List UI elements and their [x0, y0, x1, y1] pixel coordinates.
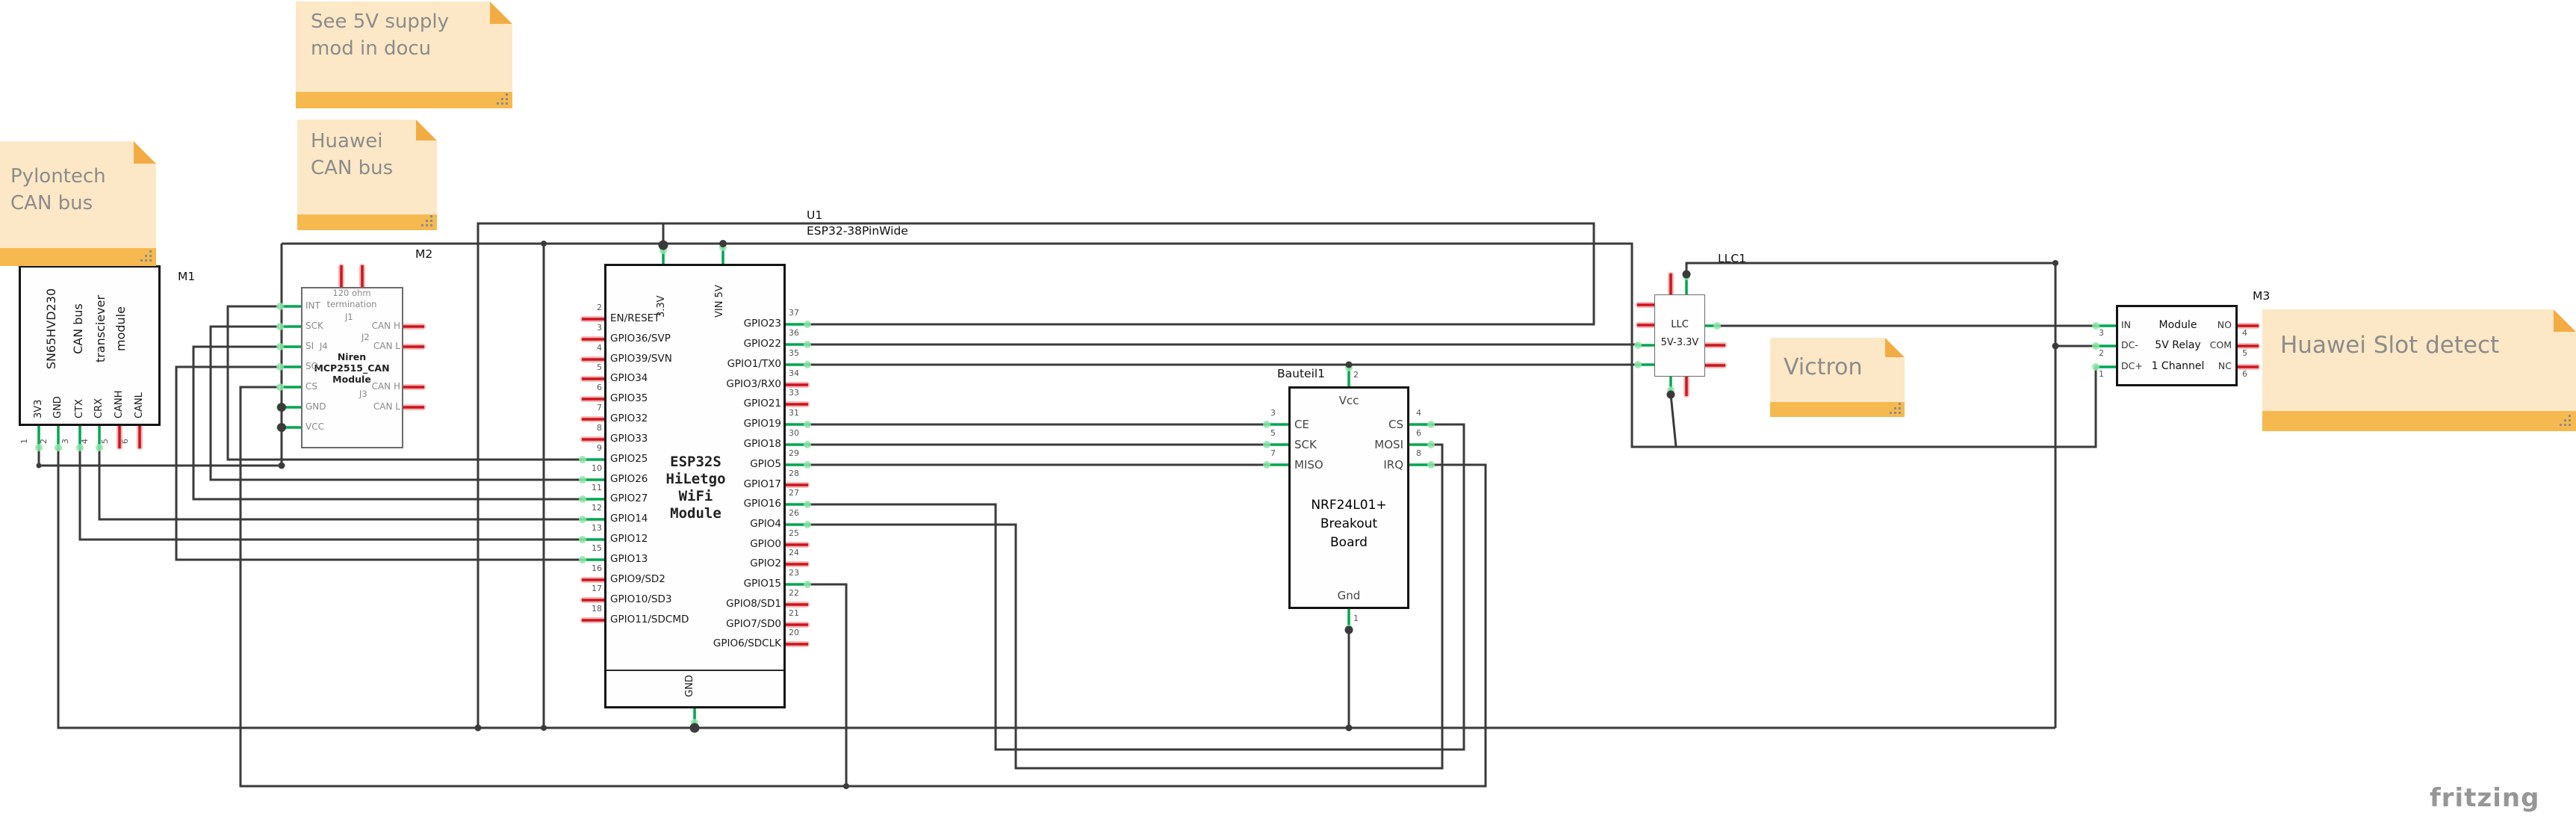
esp32-pin-num: 25: [789, 529, 799, 538]
nrf-pin-label: MOSI: [1351, 439, 1403, 451]
m2-pin-label: INT: [305, 301, 320, 311]
note-fold-icon: [490, 1, 512, 24]
nrf-pin-label: IRQ: [1351, 459, 1403, 472]
esp32-pin-num: 12: [584, 504, 602, 513]
m3-pin-label: NC: [2188, 361, 2232, 371]
esp32-pin-num: 35: [789, 349, 799, 358]
esp32-pin-num: 6: [584, 383, 602, 392]
note-resize-grip[interactable]: [1890, 403, 1902, 415]
m3-pin-num: 6: [2242, 370, 2247, 379]
m2-j2: J2: [361, 333, 370, 342]
m3-pin-num: 2: [2099, 349, 2104, 358]
m1-pin-label: CTX: [75, 359, 85, 418]
note-bottom-bar[interactable]: [2262, 411, 2576, 431]
esp32-pin-label: GPIO14: [610, 513, 648, 525]
esp32-part-name: ESP32-38PinWide: [807, 225, 908, 238]
esp32-pin-num: 24: [789, 549, 799, 557]
esp32-pin-num: 16: [584, 564, 602, 573]
m2-pin-label: SO: [305, 362, 318, 371]
esp32-pin-num: 9: [584, 444, 602, 453]
m3-pin-num: 1: [2099, 370, 2104, 379]
esp32-pin-label: GPIO19: [669, 418, 781, 430]
nrf-vcc-label: Vcc: [1322, 395, 1376, 407]
esp32-bottom-pin-gnd: GND: [685, 664, 695, 708]
esp32-pin-label: GPIO4: [669, 519, 781, 530]
esp32-pin-label: GPIO15: [669, 578, 781, 590]
esp32-pin-num: 11: [584, 483, 602, 492]
esp32-pin-num: 36: [789, 329, 799, 338]
esp32-pin-label: GPIO18: [669, 439, 781, 450]
esp32-pin-label: GPIO32: [610, 413, 648, 424]
nrf-pin-label: CS: [1351, 418, 1403, 431]
module-llc-levelshifter[interactable]: [1654, 294, 1705, 377]
m2-pin-label: CAN L: [348, 402, 400, 412]
esp32-pin-num: 17: [584, 584, 602, 593]
m3-pin-label: IN: [2121, 320, 2131, 330]
esp32-pin-label: GPIO5: [669, 459, 781, 470]
m2-termination-note-2: termination: [317, 300, 386, 309]
esp32-pin-label: GPIO23: [669, 318, 781, 330]
m3-pin-num: 4: [2242, 329, 2247, 338]
nrf-pin-label: MISO: [1294, 459, 1323, 472]
nrf-title-1: NRF24L01+: [1294, 498, 1403, 513]
m2-name-1: Niren: [305, 352, 399, 362]
nrf-gnd-label: Gnd: [1322, 590, 1376, 602]
esp32-pin-num: 34: [789, 369, 799, 378]
esp32-pin-label: GPIO25: [610, 454, 648, 465]
m3-pin-num: 5: [2242, 349, 2247, 358]
esp32-pin-num: 10: [584, 464, 602, 473]
esp32-pin-num: 7: [584, 404, 602, 412]
note-resize-grip[interactable]: [2560, 415, 2572, 427]
note-pylontech-can[interactable]: Pylontech CAN bus: [0, 141, 156, 266]
m3-pin-label: COM: [2188, 340, 2232, 350]
esp32-pin-num: 21: [789, 609, 799, 618]
m2-pin-label: GND: [305, 402, 326, 412]
note-fold-icon: [1885, 338, 1905, 357]
fritzing-schematic-canvas: M1 SN65HVD230 CAN bus transciever module…: [0, 0, 2576, 825]
note-text: Huawei Slot detect: [2280, 332, 2499, 359]
esp32-pin-num: 26: [789, 509, 799, 518]
esp32-pin-label: GPIO7/SD0: [669, 619, 781, 630]
note-5v-supply[interactable]: See 5V supply mod in docu: [296, 1, 512, 108]
esp32-pin-num: 8: [584, 424, 602, 433]
note-bottom-bar[interactable]: [1770, 402, 1905, 417]
m2-pin-label: SCK: [305, 321, 323, 331]
m2-pin-label: CAN H: [348, 382, 400, 392]
esp32-pin-label: GPIO1/TX0: [669, 359, 781, 370]
esp32-pin-label: GPIO33: [610, 433, 648, 445]
note-resize-grip[interactable]: [140, 250, 152, 262]
esp32-pin-num: 33: [789, 389, 799, 398]
esp32-pin-label: GPIO8/SD1: [669, 599, 781, 610]
note-fold-icon: [2554, 309, 2576, 332]
note-resize-grip[interactable]: [497, 93, 509, 105]
note-fold-icon: [134, 141, 156, 164]
m1-pin-num: 5: [101, 427, 110, 444]
esp32-pin-num: 30: [789, 429, 799, 438]
m2-name-2: MCP2515_CAN: [305, 363, 399, 374]
nrf-pin-num: 5: [1259, 429, 1276, 438]
m3-ref: M3: [2253, 290, 2270, 303]
llc-line-2: 5V-3.3V: [1655, 338, 1704, 348]
red-pins: [120, 265, 2259, 644]
esp32-pin-label: EN/RESET: [610, 313, 659, 324]
note-bottom-bar[interactable]: [0, 248, 156, 266]
esp32-pin-label: GPIO34: [610, 373, 648, 384]
m1-pin-label: GND: [53, 359, 63, 418]
m1-ref: M1: [178, 271, 195, 283]
m3-pin-num: 3: [2099, 329, 2104, 338]
esp32-pin-num: 37: [789, 309, 799, 318]
note-huawei-slot-detect[interactable]: Huawei Slot detect: [2262, 309, 2576, 431]
m2-termination-note-1: 120 ohm: [325, 288, 379, 298]
esp32-pin-num: 20: [789, 628, 799, 637]
esp32-pin-num: 22: [789, 589, 799, 598]
nrf-pin-num: 8: [1416, 449, 1421, 458]
esp32-pin-label: GPIO26: [610, 474, 648, 485]
note-resize-grip[interactable]: [421, 215, 433, 227]
esp32-pin-num: 28: [789, 469, 799, 478]
nrf-title-3: Board: [1294, 536, 1403, 550]
note-text: Victron: [1784, 354, 1863, 380]
esp32-pin-label: GPIO17: [669, 479, 781, 490]
esp32-pin-label: GPIO2: [669, 558, 781, 569]
note-text: CAN bus: [10, 192, 93, 214]
esp32-pin-label: GPIO10/SD3: [610, 594, 672, 605]
note-text: CAN bus: [311, 157, 393, 179]
esp32-ref: U1: [807, 209, 822, 222]
esp32-pin-label: GPIO22: [669, 339, 781, 350]
esp32-pin-num: 18: [584, 605, 602, 614]
esp32-pin-label: GPIO0: [669, 539, 781, 550]
m2-j4: J4: [320, 342, 328, 351]
nrf-title-2: Breakout: [1294, 517, 1403, 531]
esp32-pin-label: GPIO12: [610, 534, 648, 545]
esp32-pin-label: GPIO16: [669, 498, 781, 510]
m1-pin-num: 1: [20, 427, 29, 444]
note-text: Huawei: [311, 130, 382, 152]
m2-pin-label: CS: [305, 382, 317, 392]
m1-pin-label: CANL: [134, 359, 145, 418]
esp32-pin-label: GPIO21: [669, 398, 781, 410]
esp32-top-pin-vin5v: VIN 5V: [715, 265, 725, 318]
m2-pin-label: CAN L: [348, 342, 400, 351]
note-bottom-bar[interactable]: [297, 214, 437, 230]
esp32-pin-label: GPIO6/SDCLK: [669, 638, 781, 649]
esp32-top-pin-3v3: 3.3V: [657, 265, 667, 318]
esp32-pin-label: GPIO3/RX0: [669, 379, 781, 390]
nrf-pin-num: 4: [1416, 409, 1421, 418]
note-huawei-can[interactable]: Huawei CAN bus: [297, 120, 437, 230]
esp32-pin-label: GPIO39/SVN: [610, 353, 672, 365]
m3-pin-label: DC-: [2121, 340, 2138, 350]
esp32-pin-num: 3: [584, 324, 602, 333]
m2-j1: J1: [345, 312, 353, 322]
esp32-pin-num: 4: [584, 344, 602, 353]
esp32-pin-num: 13: [584, 524, 602, 533]
m1-pin-label: CRX: [94, 359, 105, 418]
nrf-pin-num: 7: [1259, 449, 1276, 458]
note-bottom-bar[interactable]: [296, 92, 512, 108]
esp32-pin-label: GPIO9/SD2: [610, 574, 665, 585]
esp32-pin-num: 31: [789, 409, 799, 418]
esp32-pin-label: GPIO27: [610, 493, 648, 504]
llc-line-1: LLC: [1655, 320, 1704, 330]
m1-pin-num: 4: [81, 427, 90, 444]
m2-pin-label: SI: [305, 342, 314, 351]
esp32-pin-num: 5: [584, 363, 602, 372]
note-text: mod in docu: [311, 37, 431, 60]
esp32-pin-num: 15: [584, 544, 602, 553]
nrf-pin-label: SCK: [1294, 439, 1317, 451]
nrf-pin-num: 6: [1416, 429, 1421, 438]
m1-pin-num: 6: [121, 427, 130, 444]
m1-pin-label: CANH: [114, 359, 125, 418]
m1-pin-label: 3V3: [34, 359, 44, 418]
m1-pin-num: 2: [40, 427, 49, 444]
esp32-pin-num: 23: [789, 569, 799, 578]
m1-pin-num: 3: [61, 427, 70, 444]
m2-pin-label: CAN H: [348, 321, 400, 331]
note-fold-icon: [416, 120, 437, 140]
m3-pin-label: DC+: [2121, 361, 2143, 371]
esp32-pin-label: GPIO36/SVP: [610, 333, 671, 344]
esp32-pin-label: GPIO35: [610, 393, 648, 404]
note-victron[interactable]: Victron: [1770, 338, 1905, 417]
llc-ref: LLC1: [1718, 253, 1746, 265]
nrf-ref: Bauteil1: [1277, 368, 1325, 380]
nrf-pin-label: CE: [1294, 418, 1309, 431]
esp32-pin-label: GPIO13: [610, 554, 648, 565]
m2-pin-label: VCC: [305, 422, 324, 432]
note-text: Pylontech: [10, 165, 106, 188]
fritzing-logo: fritzing: [2430, 783, 2539, 813]
nrf-pin-num: 2: [1353, 371, 1359, 380]
esp32-pin-num: 27: [789, 489, 799, 498]
nrf-pin-num: 1: [1353, 614, 1359, 623]
esp32-pin-num: 29: [789, 449, 799, 458]
m3-pin-label: NO: [2188, 320, 2232, 330]
esp32-pin-num: 2: [584, 303, 602, 312]
m2-ref: M2: [415, 248, 432, 261]
note-text: See 5V supply: [311, 10, 449, 33]
nrf-pin-num: 3: [1259, 409, 1276, 418]
